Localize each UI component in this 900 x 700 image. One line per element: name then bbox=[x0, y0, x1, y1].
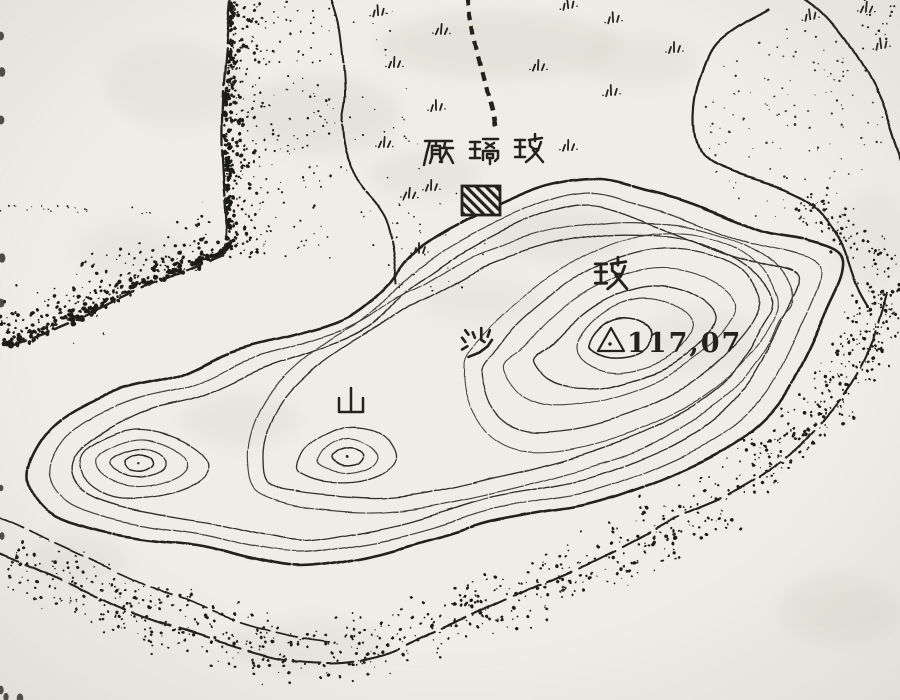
stipple-dot bbox=[802, 398, 804, 401]
stipple-dot bbox=[301, 30, 303, 32]
grass-stroke bbox=[409, 188, 410, 198]
stipple-dot bbox=[271, 229, 273, 231]
stipple-dot bbox=[449, 279, 450, 280]
stipple-dot bbox=[263, 245, 264, 246]
stipple-dot bbox=[304, 245, 306, 247]
grass-stroke bbox=[377, 5, 378, 15]
stipple-dot bbox=[786, 37, 787, 38]
stipple-dot bbox=[881, 116, 883, 118]
stipple-dot bbox=[318, 109, 320, 111]
stipple-dot bbox=[254, 101, 256, 103]
stipple-dot bbox=[866, 26, 868, 28]
stipple-dot bbox=[827, 76, 828, 77]
stipple-dot bbox=[804, 30, 806, 32]
stipple-dot bbox=[733, 114, 735, 116]
stipple-dot bbox=[288, 119, 290, 121]
stipple-dot bbox=[261, 233, 262, 234]
stipple-dot bbox=[254, 93, 256, 95]
stipple-dot bbox=[304, 185, 305, 186]
stipple-dot bbox=[710, 126, 711, 127]
stipple-dot bbox=[288, 88, 290, 90]
grass-stroke bbox=[613, 12, 614, 22]
stipple-dot bbox=[235, 118, 237, 120]
stipple-dot bbox=[360, 211, 362, 213]
stipple-dot bbox=[799, 218, 801, 220]
stipple-dot bbox=[247, 130, 249, 132]
stipple-dot bbox=[106, 299, 108, 301]
stipple-dot bbox=[751, 149, 752, 150]
stipple-dot bbox=[313, 132, 315, 134]
stipple-dot bbox=[372, 244, 374, 246]
stipple-dot bbox=[398, 204, 400, 206]
stipple-dot bbox=[885, 36, 887, 38]
stipple-dot bbox=[241, 109, 243, 111]
stipple-dot bbox=[787, 95, 788, 96]
stipple-dot bbox=[255, 45, 258, 48]
stipple-dot bbox=[321, 226, 322, 227]
stipple-dot bbox=[334, 122, 335, 123]
stipple-dot bbox=[401, 282, 402, 283]
stipple-dot bbox=[260, 106, 263, 109]
stipple-dot bbox=[341, 169, 343, 171]
stipple-dot bbox=[768, 199, 769, 200]
stipple-dot bbox=[393, 128, 395, 130]
elevation-value-label: 117,07 bbox=[627, 328, 742, 359]
stipple-dot bbox=[5, 300, 8, 303]
stipple-dot bbox=[354, 140, 355, 141]
stipple-dot bbox=[243, 158, 246, 161]
stipple-dot bbox=[892, 5, 894, 7]
stipple-dot bbox=[301, 149, 303, 151]
stipple-dot bbox=[783, 175, 786, 178]
stipple-dot bbox=[279, 149, 280, 150]
stipple-dot bbox=[445, 234, 446, 235]
stipple-dot bbox=[269, 125, 271, 127]
grass-stroke bbox=[384, 137, 385, 147]
stipple-dot bbox=[319, 180, 320, 181]
stipple-dot bbox=[438, 204, 439, 205]
stipple-dot bbox=[710, 132, 712, 134]
stipple-dot bbox=[304, 53, 306, 55]
stipple-dot bbox=[303, 89, 305, 91]
stipple-dot bbox=[232, 47, 234, 49]
stipple-dot bbox=[330, 176, 333, 179]
stipple-dot bbox=[877, 29, 880, 32]
stipple-dot bbox=[235, 230, 238, 233]
stipple-dot bbox=[406, 138, 408, 140]
stipple-dot bbox=[316, 167, 317, 168]
stipple-dot bbox=[725, 107, 726, 108]
stipple-dot bbox=[286, 151, 288, 153]
stipple-dot bbox=[793, 50, 795, 52]
stipple-dot bbox=[817, 63, 818, 64]
stipple-dot bbox=[253, 176, 254, 177]
stipple-dot bbox=[449, 266, 450, 267]
stipple-dot bbox=[818, 146, 820, 148]
stipple-dot bbox=[261, 208, 262, 209]
stipple-dot bbox=[736, 94, 737, 95]
stipple-dot bbox=[104, 335, 105, 336]
stipple-dot bbox=[868, 13, 870, 15]
stipple-dot bbox=[307, 117, 310, 120]
stipple-dot bbox=[723, 143, 724, 144]
stipple-dot bbox=[323, 26, 324, 27]
stipple-dot bbox=[833, 79, 835, 81]
stipple-dot bbox=[265, 240, 266, 241]
stipple-dot bbox=[353, 22, 355, 24]
stipple-dot bbox=[829, 73, 831, 75]
stipple-dot bbox=[728, 182, 729, 183]
stipple-dot bbox=[768, 52, 770, 54]
stipple-dot bbox=[325, 118, 327, 120]
stipple-dot bbox=[647, 544, 650, 546]
stipple-dot bbox=[766, 104, 767, 105]
stipple-dot bbox=[279, 191, 281, 193]
stipple-dot bbox=[238, 204, 240, 206]
stipple-dot bbox=[775, 45, 777, 47]
stipple-dot bbox=[714, 101, 716, 103]
stipple-dot bbox=[269, 60, 271, 62]
stipple-dot bbox=[882, 22, 884, 24]
stipple-dot bbox=[155, 605, 156, 606]
stipple-dot bbox=[276, 140, 278, 142]
stipple-dot bbox=[812, 61, 814, 63]
stipple-dot bbox=[307, 167, 309, 169]
stipple-dot bbox=[770, 111, 771, 112]
map-canvas: 117,07 bbox=[0, 0, 900, 700]
stipple-dot bbox=[806, 111, 808, 113]
stipple-dot bbox=[297, 140, 299, 142]
stipple-dot bbox=[751, 93, 752, 94]
stipple-dot bbox=[830, 177, 832, 179]
stipple-dot bbox=[330, 31, 331, 32]
stipple-dot bbox=[843, 126, 844, 127]
stipple-dot bbox=[119, 628, 120, 629]
stipple-dot bbox=[288, 154, 289, 155]
stipple-dot bbox=[884, 32, 885, 33]
stipple-dot bbox=[743, 118, 745, 120]
stipple-dot bbox=[327, 236, 329, 238]
stipple-dot bbox=[330, 97, 332, 99]
stipple-dot bbox=[767, 79, 769, 81]
stipple-dot bbox=[841, 124, 843, 126]
stipple-dot bbox=[711, 123, 713, 125]
stipple-dot bbox=[301, 667, 302, 668]
stipple-dot bbox=[791, 54, 793, 56]
paper-stain bbox=[180, 392, 300, 448]
stipple-dot bbox=[328, 103, 329, 104]
stipple-dot bbox=[831, 143, 832, 144]
stipple-dot bbox=[277, 136, 279, 138]
stipple-dot bbox=[834, 101, 836, 103]
stipple-dot bbox=[867, 122, 869, 124]
stipple-dot bbox=[412, 216, 414, 218]
stipple-dot bbox=[734, 183, 735, 184]
stipple-dot bbox=[305, 147, 307, 149]
grass-dot bbox=[410, 252, 412, 254]
stipple-dot bbox=[310, 94, 313, 97]
stipple-dot bbox=[401, 248, 402, 249]
stipple-dot bbox=[839, 106, 840, 107]
stipple-dot bbox=[419, 233, 420, 234]
stipple-dot bbox=[286, 20, 288, 22]
stipple-dot bbox=[875, 32, 877, 34]
stipple-dot bbox=[96, 316, 98, 318]
stipple-dot bbox=[846, 70, 848, 72]
grass-dot bbox=[427, 251, 429, 253]
stipple-dot bbox=[384, 132, 386, 134]
stipple-dot bbox=[329, 257, 331, 259]
stipple-dot bbox=[707, 149, 708, 150]
stipple-dot bbox=[267, 229, 269, 231]
stipple-dot bbox=[824, 93, 825, 94]
stipple-dot bbox=[777, 215, 778, 216]
stipple-dot bbox=[876, 125, 877, 126]
stipple-dot bbox=[297, 248, 299, 250]
stipple-dot bbox=[474, 248, 475, 249]
stipple-dot bbox=[739, 91, 741, 93]
stipple-dot bbox=[285, 256, 287, 258]
stipple-dot bbox=[300, 220, 302, 222]
stipple-dot bbox=[780, 149, 781, 150]
stipple-dot bbox=[886, 320, 889, 323]
stipple-dot bbox=[829, 92, 831, 94]
stipple-dot bbox=[790, 80, 791, 81]
stipple-dot bbox=[773, 473, 774, 474]
stipple-dot bbox=[312, 46, 314, 48]
stipple-dot bbox=[843, 157, 845, 159]
paper-stain bbox=[240, 75, 400, 155]
stipple-dot bbox=[765, 142, 768, 145]
stipple-dot bbox=[269, 224, 271, 226]
stipple-dot bbox=[794, 117, 796, 119]
stipple-dot bbox=[727, 131, 730, 134]
stipple-dot bbox=[794, 124, 797, 127]
grass-dot bbox=[665, 51, 667, 53]
stipple-dot bbox=[34, 331, 36, 334]
stipple-dot bbox=[375, 109, 376, 110]
stipple-dot bbox=[698, 481, 700, 483]
stipple-dot bbox=[736, 60, 738, 62]
stipple-dot bbox=[293, 137, 295, 139]
stipple-dot bbox=[327, 133, 329, 135]
stipple-dot bbox=[409, 141, 411, 143]
stipple-dot bbox=[764, 78, 766, 80]
stipple-dot bbox=[241, 79, 243, 81]
stipple-dot bbox=[276, 187, 278, 189]
stipple-dot bbox=[187, 259, 190, 262]
stipple-dot bbox=[295, 81, 296, 82]
stipple-dot bbox=[322, 125, 324, 127]
stipple-dot bbox=[801, 201, 803, 203]
stipple-dot bbox=[849, 174, 851, 176]
stipple-dot bbox=[349, 115, 351, 117]
stipple-dot bbox=[876, 140, 878, 142]
stipple-dot bbox=[734, 75, 736, 77]
stipple-dot bbox=[672, 551, 675, 554]
stipple-dot bbox=[271, 134, 274, 137]
stipple-dot bbox=[886, 22, 888, 24]
stipple-dot bbox=[293, 150, 294, 151]
stipple-dot bbox=[757, 214, 759, 216]
stipple-dot bbox=[418, 225, 420, 227]
stipple-dot bbox=[299, 50, 301, 52]
stipple-dot bbox=[314, 233, 315, 234]
stipple-dot bbox=[240, 170, 242, 172]
stipple-dot bbox=[432, 289, 434, 291]
stipple-dot bbox=[320, 185, 322, 187]
stipple-dot bbox=[329, 8, 331, 10]
stipple-dot bbox=[314, 111, 315, 112]
scanned-topographic-map: 玻璃廠 玻沙山 bbox=[0, 0, 900, 700]
stipple-dot bbox=[768, 106, 770, 108]
stipple-dot bbox=[784, 198, 785, 199]
stipple-dot bbox=[778, 115, 780, 117]
stipple-dot bbox=[299, 59, 300, 60]
stipple-dot bbox=[129, 279, 133, 284]
stipple-dot bbox=[738, 197, 740, 199]
stipple-dot bbox=[252, 18, 254, 20]
stipple-dot bbox=[815, 36, 817, 38]
stipple-dot bbox=[850, 96, 852, 98]
stipple-dot bbox=[255, 126, 257, 128]
stipple-dot bbox=[300, 175, 302, 177]
stipple-dot bbox=[313, 173, 315, 175]
stipple-dot bbox=[66, 314, 68, 316]
stipple-dot bbox=[279, 60, 281, 62]
stipple-dot bbox=[389, 263, 391, 265]
stipple-dot bbox=[256, 238, 258, 240]
stipple-dot bbox=[771, 143, 773, 145]
stipple-dot bbox=[180, 632, 183, 635]
stipple-dot bbox=[314, 17, 316, 19]
factory-building-symbol bbox=[462, 186, 500, 215]
stipple-dot bbox=[318, 83, 320, 85]
stipple-dot bbox=[278, 18, 279, 19]
stipple-dot bbox=[719, 128, 720, 129]
stipple-dot bbox=[401, 199, 403, 201]
stipple-dot bbox=[276, 216, 277, 217]
stipple-dot bbox=[232, 64, 234, 66]
stipple-dot bbox=[723, 65, 724, 66]
stipple-dot bbox=[837, 81, 839, 83]
stipple-dot bbox=[757, 40, 760, 43]
stipple-dot bbox=[315, 92, 316, 93]
stipple-dot bbox=[275, 95, 276, 96]
stipple-dot bbox=[282, 201, 284, 203]
stipple-dot bbox=[279, 41, 281, 43]
paper-stain bbox=[780, 575, 900, 645]
stipple-dot bbox=[110, 582, 113, 586]
stipple-dot bbox=[563, 595, 565, 597]
stipple-dot bbox=[842, 71, 844, 73]
stipple-dot bbox=[74, 343, 75, 344]
stipple-dot bbox=[829, 113, 831, 115]
stipple-dot bbox=[233, 181, 234, 182]
stipple-dot bbox=[706, 106, 708, 108]
stipple-dot bbox=[319, 244, 320, 245]
grass-stroke bbox=[880, 38, 881, 48]
stipple-dot bbox=[301, 240, 303, 242]
stipple-dot bbox=[232, 188, 234, 190]
stipple-dot bbox=[247, 112, 249, 114]
stipple-dot bbox=[313, 204, 316, 207]
stipple-dot bbox=[197, 221, 200, 225]
stipple-dot bbox=[781, 54, 783, 56]
stipple-dot bbox=[361, 134, 363, 136]
stipple-dot bbox=[258, 165, 259, 166]
stipple-dot bbox=[299, 247, 301, 249]
stipple-dot bbox=[419, 168, 420, 169]
stipple-dot bbox=[392, 11, 393, 12]
stipple-dot bbox=[461, 284, 463, 286]
stipple-dot bbox=[311, 23, 313, 25]
stipple-dot bbox=[484, 243, 485, 244]
stipple-dot bbox=[866, 13, 868, 15]
stipple-dot bbox=[232, 34, 234, 36]
stipple-dot bbox=[253, 117, 255, 119]
stipple-dot bbox=[786, 206, 787, 207]
stipple-dot bbox=[386, 57, 387, 58]
stipple-dot bbox=[785, 28, 787, 30]
stipple-dot bbox=[748, 128, 749, 129]
paper-stain bbox=[420, 276, 540, 324]
stipple-dot bbox=[370, 210, 371, 211]
paper-stain bbox=[105, 40, 245, 130]
stipple-dot bbox=[294, 225, 296, 227]
stipple-dot bbox=[290, 20, 292, 22]
stipple-dot bbox=[836, 41, 838, 43]
stipple-dot bbox=[283, 7, 285, 9]
stipple-dot bbox=[865, 144, 866, 145]
stipple-dot bbox=[313, 61, 315, 63]
stipple-dot bbox=[385, 51, 387, 53]
stipple-dot bbox=[377, 41, 378, 42]
stipple-dot bbox=[813, 69, 815, 71]
stipple-dot bbox=[286, 146, 287, 147]
stipple-dot bbox=[418, 143, 419, 144]
stipple-dot bbox=[243, 98, 244, 99]
stipple-dot bbox=[239, 161, 241, 163]
stipple-dot bbox=[74, 302, 76, 304]
stipple-dot bbox=[777, 116, 778, 117]
stipple-dot bbox=[455, 193, 457, 195]
stipple-dot bbox=[327, 122, 329, 124]
stipple-dot bbox=[254, 59, 257, 62]
stipple-dot bbox=[862, 47, 864, 49]
stipple-dot bbox=[397, 203, 398, 204]
stipple-dot bbox=[861, 136, 863, 138]
stipple-dot bbox=[823, 69, 824, 70]
stipple-dot bbox=[290, 32, 293, 35]
stipple-dot bbox=[403, 120, 405, 122]
grass-stroke bbox=[567, 0, 568, 8]
stipple-dot bbox=[809, 127, 811, 129]
stipple-dot bbox=[263, 201, 265, 203]
stipple-dot bbox=[261, 17, 264, 20]
stipple-dot bbox=[863, 170, 864, 171]
grass-stroke bbox=[538, 60, 539, 70]
stipple-dot bbox=[418, 231, 420, 233]
stipple-dot bbox=[888, 14, 890, 16]
stipple-dot bbox=[889, 4, 891, 6]
stipple-dot bbox=[407, 87, 408, 88]
stipple-dot bbox=[269, 640, 272, 643]
stipple-dot bbox=[841, 76, 843, 78]
stipple-dot bbox=[306, 136, 308, 138]
paper-stain bbox=[580, 30, 700, 90]
grass-stroke bbox=[441, 24, 442, 34]
